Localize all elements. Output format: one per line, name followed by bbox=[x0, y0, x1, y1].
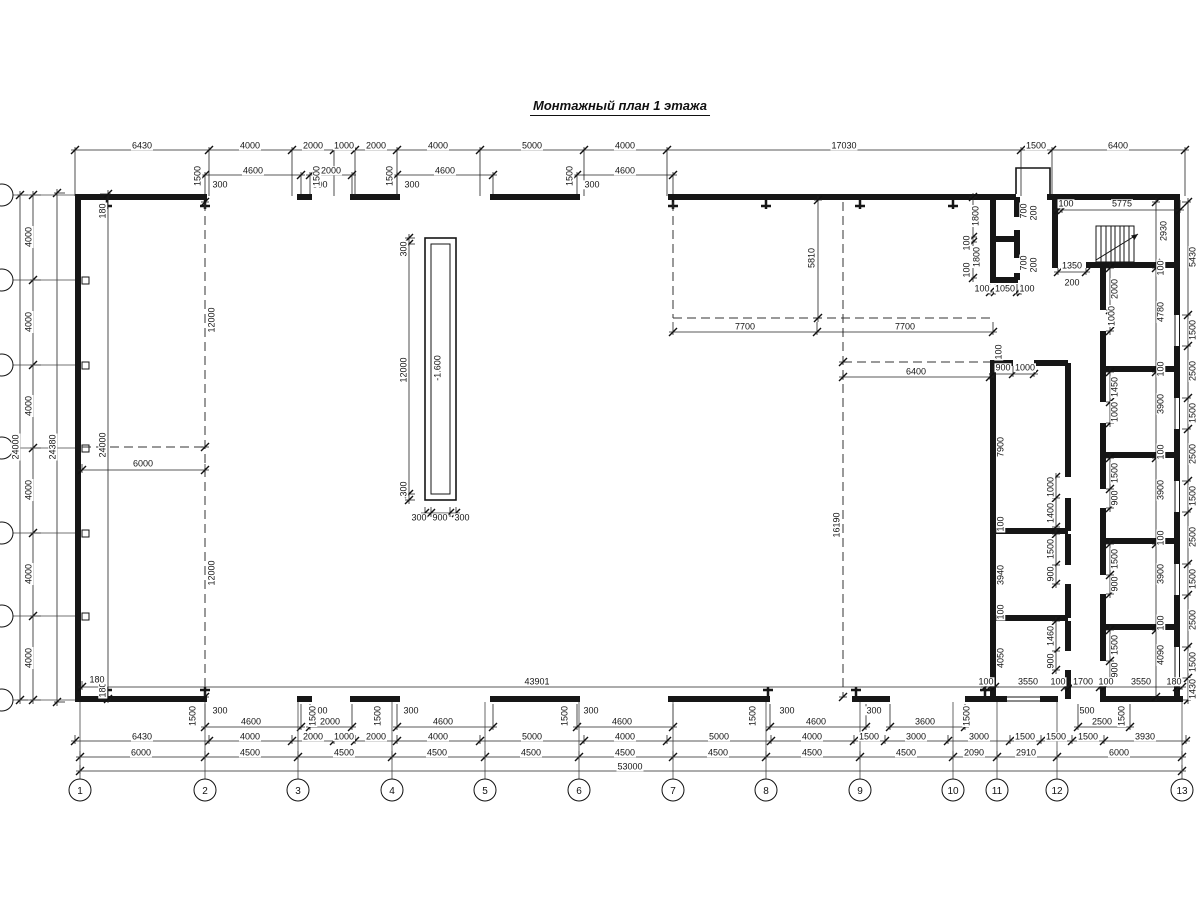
dimension-label: 1500 bbox=[962, 705, 971, 727]
dimension-label: 1450 bbox=[1110, 376, 1119, 398]
dimension-label: 300 bbox=[453, 513, 470, 522]
dimension-label: 2910 bbox=[1015, 748, 1037, 757]
axis-circle bbox=[0, 689, 13, 711]
dimension-label: 3000 bbox=[905, 732, 927, 741]
dimension-label: 180 bbox=[88, 675, 105, 684]
dimension-label: 900 bbox=[1046, 652, 1055, 669]
dimension-label: 1430 bbox=[1188, 678, 1197, 700]
dimension-label: 1500 bbox=[1110, 634, 1119, 656]
dimension-label: 3600 bbox=[914, 717, 936, 726]
dimension-label: 2090 bbox=[963, 748, 985, 757]
axis-number: 6 bbox=[576, 786, 582, 797]
dimension-label: 7700 bbox=[894, 322, 916, 331]
dimension-label: 200 bbox=[1063, 278, 1080, 287]
dimension-label: 1500 bbox=[858, 732, 880, 741]
dimension-label: 200 bbox=[1029, 204, 1038, 221]
dimension-label: 1500 bbox=[1188, 651, 1197, 673]
walls-layer bbox=[75, 194, 1183, 702]
column-marks-layer bbox=[82, 200, 990, 696]
dimension-label: 1500 bbox=[193, 165, 202, 187]
dimension-label: 100 bbox=[1156, 529, 1165, 546]
dimension-label: 1500 bbox=[1046, 538, 1055, 560]
dimension-label: 500 bbox=[1078, 706, 1095, 715]
dimension-label: 5775 bbox=[1111, 199, 1133, 208]
dimension-label: 100 bbox=[1057, 199, 1074, 208]
dimension-label: 43901 bbox=[523, 677, 550, 686]
dimension-label: 6000 bbox=[132, 459, 154, 468]
dimension-label: 300 bbox=[583, 180, 600, 189]
axis-number: 2 bbox=[202, 786, 208, 797]
dimension-label: 7900 bbox=[996, 436, 1005, 458]
dimension-label: 4000 bbox=[24, 226, 33, 248]
dimension-label: 4500 bbox=[239, 748, 261, 757]
dimension-label: 6400 bbox=[1107, 141, 1129, 150]
dimension-label: 4000 bbox=[239, 732, 261, 741]
dimension-label: 6400 bbox=[905, 367, 927, 376]
dimension-label: 4500 bbox=[707, 748, 729, 757]
dimension-label: 300 bbox=[582, 706, 599, 715]
dimension-label: 4000 bbox=[427, 732, 449, 741]
windows-layer bbox=[1007, 315, 1180, 701]
dimension-label: 2500 bbox=[1188, 443, 1197, 465]
dimension-label: 2000 bbox=[365, 141, 387, 150]
dimension-label: 1000 bbox=[1110, 401, 1119, 423]
axis-circle bbox=[0, 184, 13, 206]
dimension-label: 4600 bbox=[240, 717, 262, 726]
dimension-label: 100 bbox=[996, 515, 1005, 532]
dimension-label: 3550 bbox=[1017, 677, 1039, 686]
dimension-label: 2000 bbox=[1110, 278, 1119, 300]
dimension-label: 12000 bbox=[207, 306, 216, 333]
dimension-label: 2930 bbox=[1159, 220, 1168, 242]
axis-number: 9 bbox=[857, 786, 863, 797]
dimension-label: 100 bbox=[962, 261, 971, 278]
dimension-label: 300 bbox=[410, 513, 427, 522]
dimension-label: 24380 bbox=[48, 433, 57, 460]
stairs-icon bbox=[1096, 226, 1138, 262]
dimension-label: 1500 bbox=[748, 705, 757, 727]
dimension-label: 900 bbox=[431, 513, 448, 522]
dimension-label: 1800 bbox=[972, 246, 981, 268]
axis-number: 3 bbox=[295, 786, 301, 797]
dimension-label: 1000 bbox=[1014, 363, 1036, 372]
dimension-label: 4600 bbox=[432, 717, 454, 726]
dimension-label: 4600 bbox=[805, 717, 827, 726]
dimension-label: 6430 bbox=[131, 141, 153, 150]
dimension-label: 1050 bbox=[994, 284, 1016, 293]
dimension-label: 3900 bbox=[1156, 393, 1165, 415]
dimension-label: 100 bbox=[994, 343, 1003, 360]
axis-number: 4 bbox=[389, 786, 395, 797]
dimension-label: 3940 bbox=[996, 564, 1005, 586]
axis-number: 13 bbox=[1176, 786, 1188, 797]
dimension-label: 1500 bbox=[1014, 732, 1036, 741]
dimension-label: 900 bbox=[1110, 489, 1119, 506]
axis-number: 5 bbox=[482, 786, 488, 797]
dashed-lines-layer bbox=[82, 202, 990, 697]
dimension-label: 4500 bbox=[801, 748, 823, 757]
dimension-label: 4050 bbox=[996, 647, 1005, 669]
dimension-label: 5000 bbox=[521, 141, 543, 150]
dimension-label: 5000 bbox=[708, 732, 730, 741]
dimension-label: 1500 bbox=[1188, 485, 1197, 507]
dimension-label: 6000 bbox=[130, 748, 152, 757]
axis-number: 11 bbox=[992, 786, 1003, 797]
dimension-label: 12000 bbox=[207, 559, 216, 586]
dimension-label: 300 bbox=[402, 706, 419, 715]
dimension-label: 1800 bbox=[971, 205, 980, 227]
dimension-label: 4000 bbox=[24, 563, 33, 585]
dimension-label: 24000 bbox=[11, 433, 20, 460]
dimension-label: 5810 bbox=[807, 247, 816, 269]
dimension-label: 4500 bbox=[895, 748, 917, 757]
dimension-label: 4780 bbox=[1156, 301, 1165, 323]
dimension-label: 100 bbox=[1097, 677, 1114, 686]
dimension-label: 1000 bbox=[1046, 476, 1055, 498]
drawing-sheet: Монтажный план 1 этажа bbox=[0, 0, 1200, 900]
dimension-label: 1500 bbox=[1110, 462, 1119, 484]
dimension-label: 2500 bbox=[1188, 609, 1197, 631]
dimension-label: 180 bbox=[1165, 677, 1182, 686]
dimension-label: 5430 bbox=[1188, 246, 1197, 268]
dimension-label: 1500 bbox=[373, 705, 382, 727]
dimension-label: 2500 bbox=[1188, 360, 1197, 382]
dimension-label: 16190 bbox=[832, 511, 841, 538]
axis-number: 1 bbox=[77, 786, 83, 797]
dimension-label: 6430 bbox=[131, 732, 153, 741]
dimension-label: 300 bbox=[399, 240, 408, 257]
dimension-label: 3900 bbox=[1156, 479, 1165, 501]
dimension-label: 900 bbox=[994, 363, 1011, 372]
dimension-label: 3550 bbox=[1130, 677, 1152, 686]
dimension-label: 4000 bbox=[614, 141, 636, 150]
dimension-label: 100 bbox=[977, 677, 994, 686]
dimension-label: 4600 bbox=[614, 166, 636, 175]
dimension-label: 100 bbox=[1156, 259, 1165, 276]
axis-circle bbox=[0, 605, 13, 627]
dimension-label: 1500 bbox=[1188, 402, 1197, 424]
dimension-label: 1400 bbox=[1046, 502, 1055, 524]
dimension-label: 1500 bbox=[565, 165, 574, 187]
dimension-label: 300 bbox=[778, 706, 795, 715]
dimension-label: 1500 bbox=[1110, 548, 1119, 570]
dimension-label: 900 bbox=[1046, 565, 1055, 582]
dimension-label: 1500 bbox=[1025, 141, 1047, 150]
dimension-label: 1460 bbox=[1046, 625, 1055, 647]
dimension-label: 100 bbox=[1156, 443, 1165, 460]
dimension-label: 1700 bbox=[1072, 677, 1094, 686]
dimension-label: 300 bbox=[399, 480, 408, 497]
axis-number: 7 bbox=[670, 786, 676, 797]
axis-number: 8 bbox=[763, 786, 769, 797]
dimension-label: 180 bbox=[98, 202, 107, 219]
dimension-label: 1500 bbox=[1117, 705, 1126, 727]
dimension-label: 1000 bbox=[333, 141, 355, 150]
dimension-label: 12000 bbox=[399, 356, 408, 383]
dimension-label: 4000 bbox=[614, 732, 636, 741]
dimension-label: 300 bbox=[403, 180, 420, 189]
dimension-label: 4600 bbox=[434, 166, 456, 175]
dimension-label: 1500 bbox=[1188, 319, 1197, 341]
axis-number: 12 bbox=[1051, 786, 1063, 797]
dimension-label: 2500 bbox=[1188, 526, 1197, 548]
axis-circle bbox=[0, 522, 13, 544]
dimension-label: 100 bbox=[1156, 614, 1165, 631]
dimension-label: 900 bbox=[1110, 575, 1119, 592]
dimension-label: 100 bbox=[973, 284, 990, 293]
dimension-label: 3000 bbox=[968, 732, 990, 741]
pit-level-mark: -1.600 bbox=[433, 354, 442, 382]
dimension-label: 2000 bbox=[319, 717, 341, 726]
dimension-label: 24000 bbox=[98, 431, 107, 458]
dimension-label: 4500 bbox=[333, 748, 355, 757]
dimension-label: 2000 bbox=[302, 141, 324, 150]
dimension-label: 7700 bbox=[734, 322, 756, 331]
dimension-label: 4090 bbox=[1156, 644, 1165, 666]
dimension-label: 300 bbox=[211, 180, 228, 189]
floor-plan-linework: 12345678910111213 bbox=[0, 0, 1200, 900]
dimension-label: 300 bbox=[865, 706, 882, 715]
dimension-label: 4000 bbox=[801, 732, 823, 741]
dimension-label: 100 bbox=[1018, 284, 1035, 293]
dimension-label: 5000 bbox=[521, 732, 543, 741]
dimension-label: 3900 bbox=[1156, 563, 1165, 585]
dimension-label: 2000 bbox=[320, 166, 342, 175]
axis-circle bbox=[0, 354, 13, 376]
dimension-label: 4500 bbox=[520, 748, 542, 757]
dimension-label: 4600 bbox=[611, 717, 633, 726]
dimension-label: 4500 bbox=[614, 748, 636, 757]
dimension-label: 4000 bbox=[24, 647, 33, 669]
dimension-label: 1500 bbox=[188, 705, 197, 727]
dimension-label: 53000 bbox=[616, 762, 643, 771]
dimension-label: 100 bbox=[996, 603, 1005, 620]
dimension-label: 1350 bbox=[1061, 261, 1083, 270]
dimension-label: 4600 bbox=[242, 166, 264, 175]
dimension-label: 1500 bbox=[312, 165, 321, 187]
dimension-label: 4000 bbox=[24, 479, 33, 501]
dimension-label: 2500 bbox=[1091, 717, 1113, 726]
dimension-label: 4500 bbox=[426, 748, 448, 757]
dimension-label: 1500 bbox=[385, 165, 394, 187]
dimension-label: 4000 bbox=[24, 311, 33, 333]
dimension-label: 3930 bbox=[1134, 732, 1156, 741]
dimension-label: 1000 bbox=[333, 732, 355, 741]
dimension-label: 6000 bbox=[1108, 748, 1130, 757]
axis-number: 10 bbox=[947, 786, 959, 797]
axis-circle bbox=[0, 269, 13, 291]
dimension-label: 4000 bbox=[427, 141, 449, 150]
dimension-label: 1500 bbox=[560, 705, 569, 727]
dimension-label: 1500 bbox=[1045, 732, 1067, 741]
dimension-label: 2000 bbox=[302, 732, 324, 741]
dimension-label: 1500 bbox=[1077, 732, 1099, 741]
dimension-label: 4000 bbox=[24, 395, 33, 417]
dimension-label: 100 bbox=[1156, 360, 1165, 377]
dimension-label: 1500 bbox=[308, 705, 317, 727]
dimension-label: 17030 bbox=[830, 141, 857, 150]
dimension-label: 200 bbox=[1029, 256, 1038, 273]
dimension-label: 100 bbox=[1049, 677, 1066, 686]
dimension-label: 4000 bbox=[239, 141, 261, 150]
dimension-label: 1500 bbox=[1188, 568, 1197, 590]
dimension-label: 2000 bbox=[365, 732, 387, 741]
dimension-label: 300 bbox=[211, 706, 228, 715]
dimension-label: 1000 bbox=[1107, 305, 1116, 327]
